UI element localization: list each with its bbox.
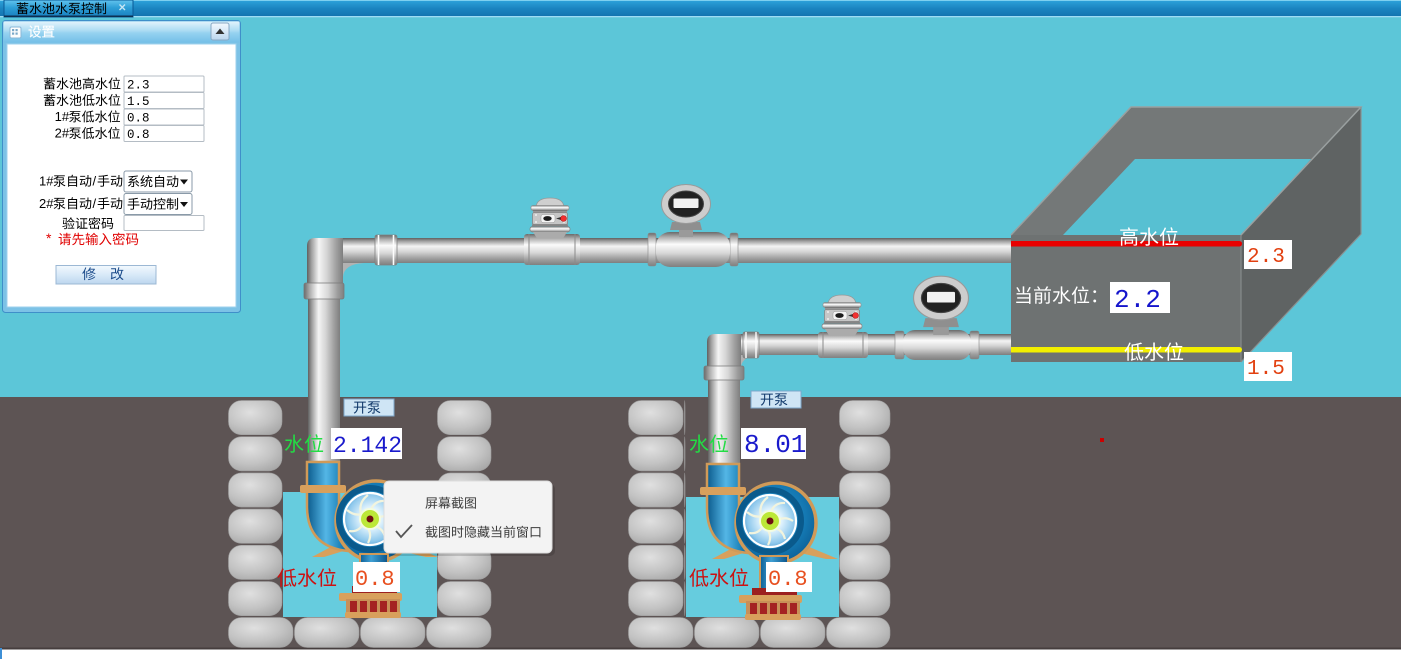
svg-text:2.2: 2.2 — [1114, 285, 1161, 315]
svg-text:0.8: 0.8 — [127, 112, 150, 126]
svg-text:/: / — [93, 196, 97, 211]
svg-text:2.3: 2.3 — [127, 79, 150, 93]
svg-text:*: * — [46, 230, 52, 246]
svg-text:2.142: 2.142 — [333, 433, 402, 459]
svg-text:0.8: 0.8 — [355, 567, 395, 592]
svg-text:1.5: 1.5 — [1247, 358, 1285, 381]
svg-text:1#: 1# — [39, 174, 54, 189]
svg-text:2#: 2# — [39, 196, 54, 211]
svg-text:/: / — [93, 174, 97, 189]
svg-text:1.5: 1.5 — [127, 95, 150, 109]
svg-text:0.8: 0.8 — [127, 128, 150, 142]
svg-text:1#: 1# — [55, 109, 70, 124]
svg-text:2.3: 2.3 — [1247, 246, 1285, 269]
svg-text:0.8: 0.8 — [768, 567, 808, 592]
svg-text:2#: 2# — [55, 126, 70, 141]
svg-text:8.01: 8.01 — [744, 430, 806, 460]
